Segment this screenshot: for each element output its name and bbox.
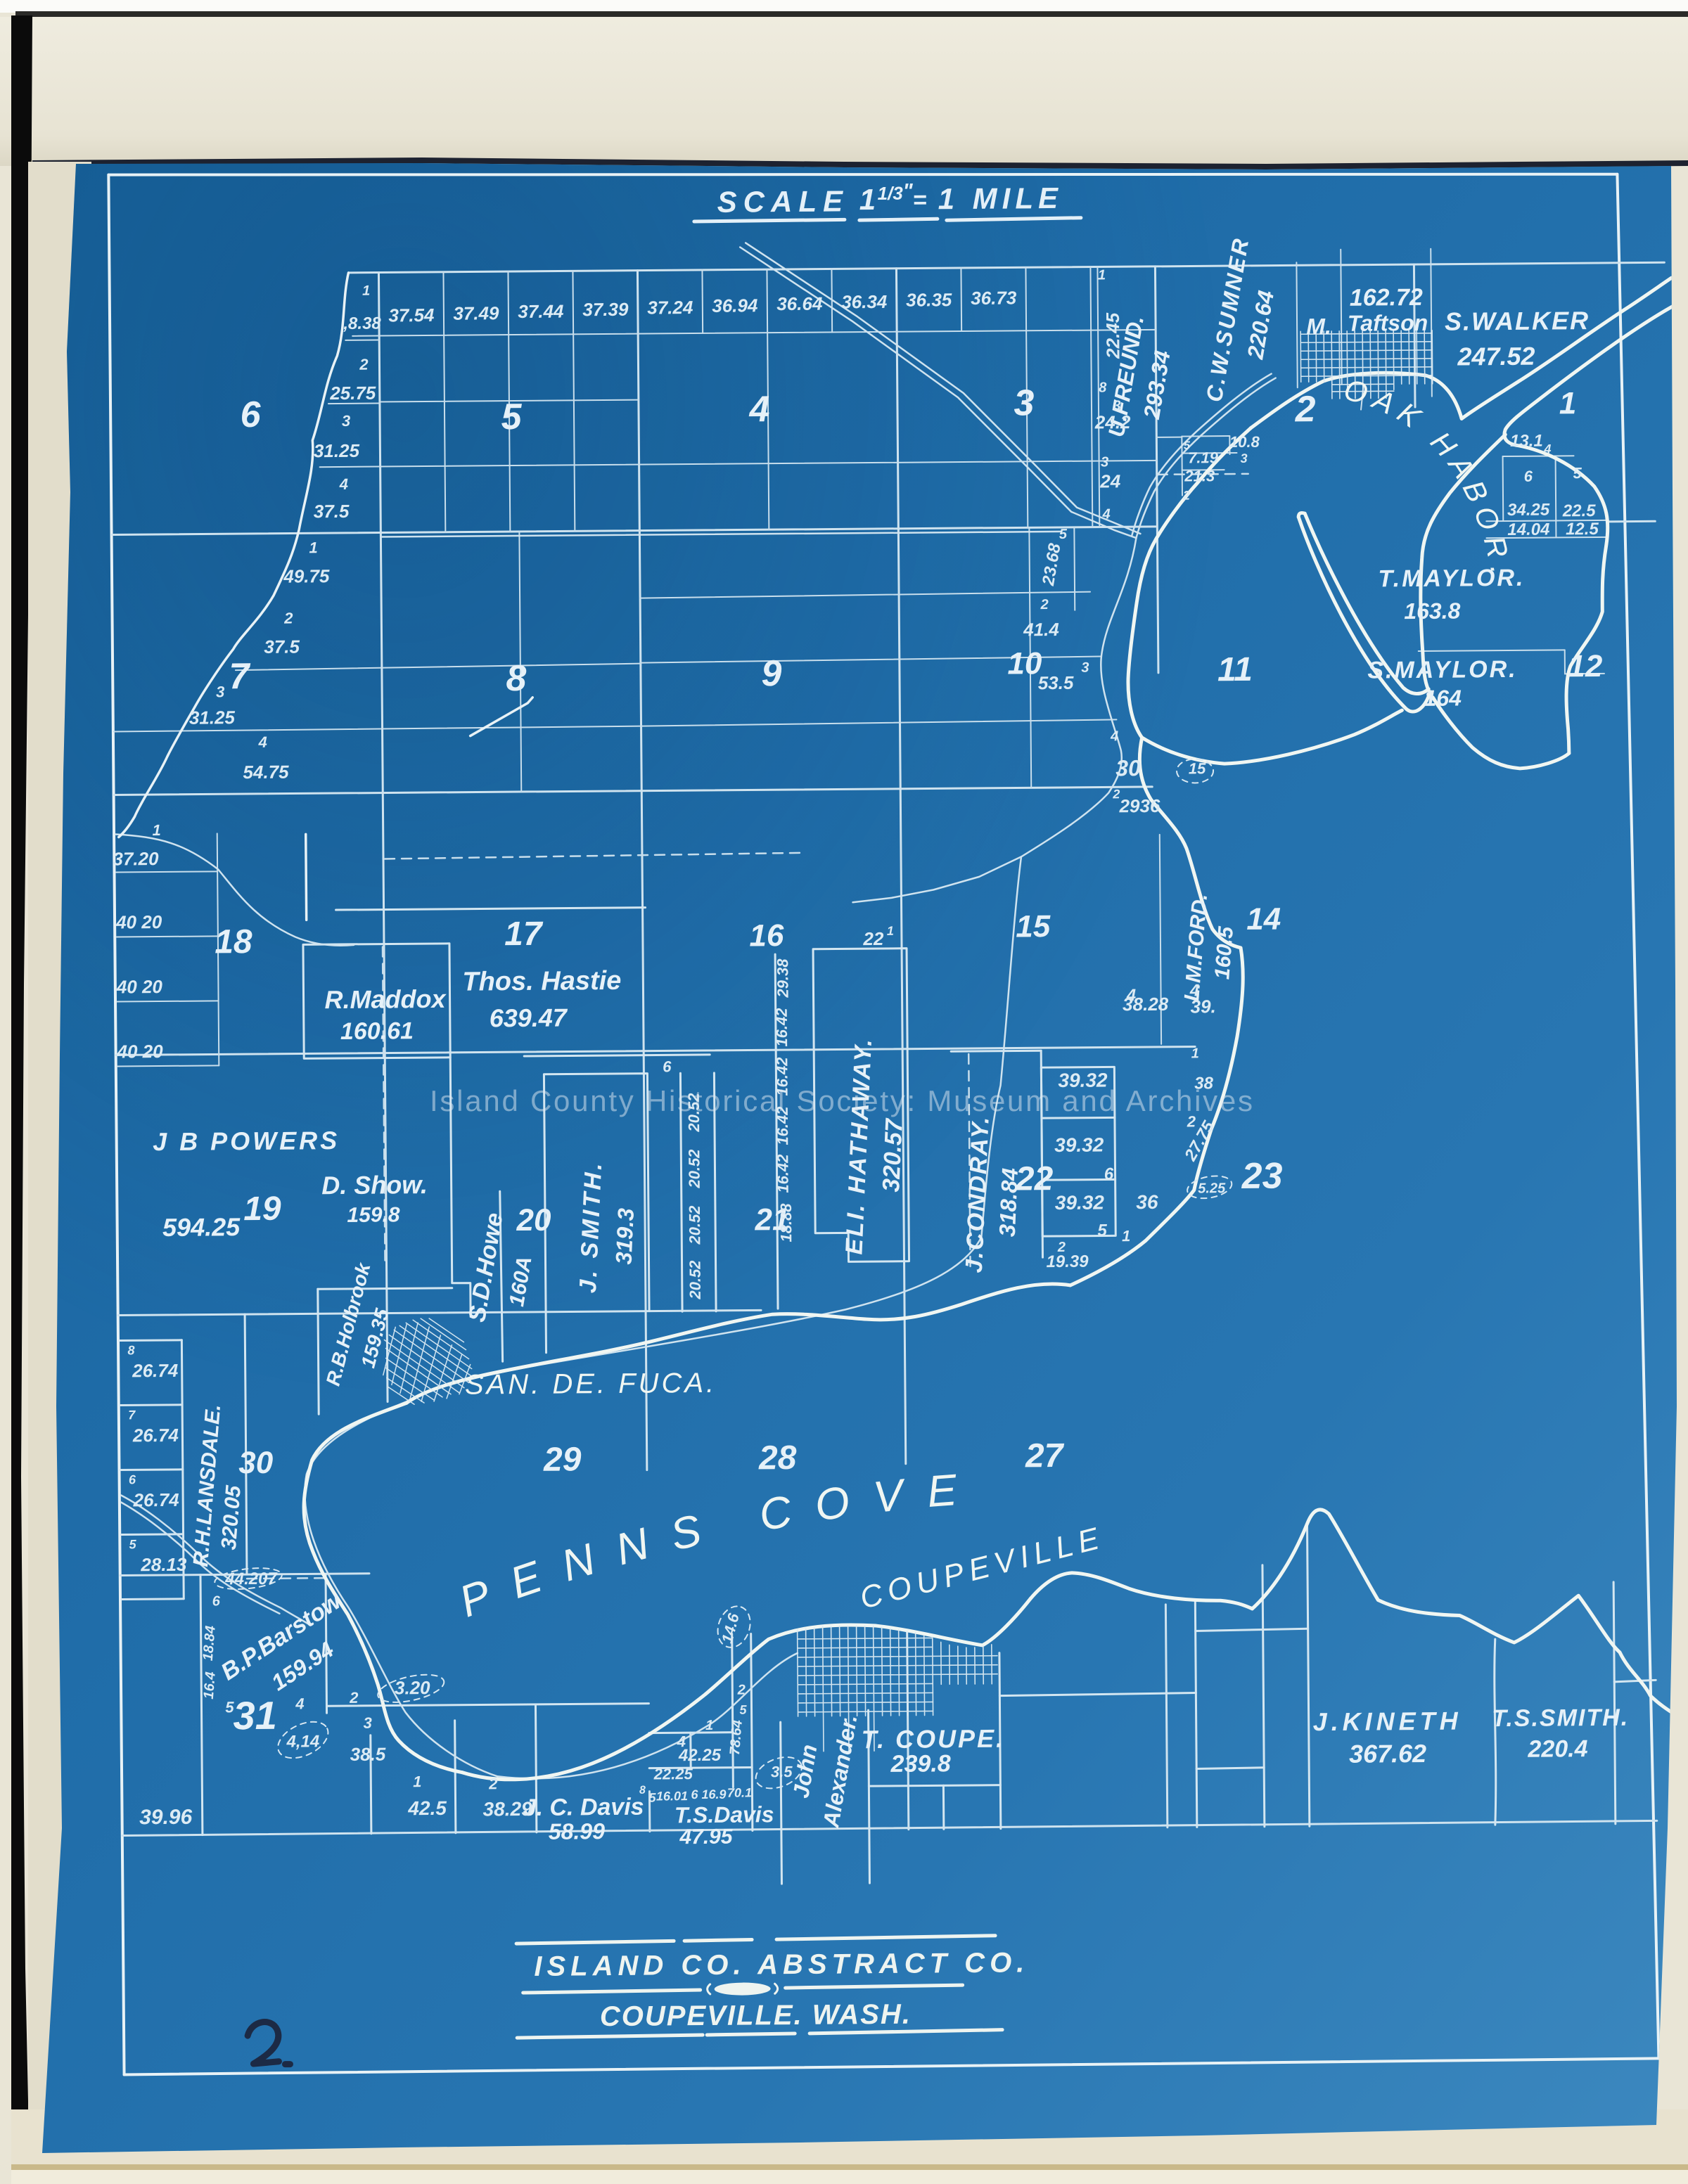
svg-text:70.1: 70.1 — [727, 1785, 752, 1799]
svg-text:2: 2 — [1182, 489, 1190, 503]
svg-text:220.4: 220.4 — [1527, 1735, 1587, 1763]
svg-text:367.62: 367.62 — [1349, 1739, 1426, 1768]
svg-text:8: 8 — [506, 658, 526, 699]
svg-text:4: 4 — [257, 733, 267, 751]
svg-text:36.34: 36.34 — [841, 291, 888, 313]
svg-text:COUPEVILLE. WASH.: COUPEVILLE. WASH. — [600, 1999, 912, 2032]
svg-text:T. COUPE.: T. COUPE. — [862, 1724, 1006, 1754]
svg-text:4,14: 4,14 — [286, 1732, 319, 1751]
svg-text:8: 8 — [639, 1785, 646, 1797]
svg-text:37.44: 37.44 — [518, 300, 564, 322]
svg-text:318.84: 318.84 — [995, 1167, 1023, 1238]
svg-text:5: 5 — [1573, 464, 1582, 482]
svg-text:5: 5 — [129, 1537, 137, 1551]
svg-text:39.32: 39.32 — [1055, 1191, 1105, 1214]
svg-text:": " — [902, 180, 913, 203]
svg-text:37.39: 37.39 — [582, 299, 629, 321]
svg-text:3: 3 — [1240, 451, 1247, 465]
svg-text:8: 8 — [127, 1343, 134, 1357]
svg-text:594.25: 594.25 — [162, 1212, 241, 1242]
svg-text:19.39: 19.39 — [1046, 1252, 1089, 1271]
svg-text:31.25: 31.25 — [314, 440, 360, 462]
svg-text:D. Show.: D. Show. — [321, 1170, 428, 1200]
svg-text:3: 3 — [1113, 398, 1120, 413]
svg-text:23: 23 — [1241, 1155, 1282, 1196]
svg-text:160.61: 160.61 — [340, 1017, 414, 1045]
svg-text:239.8: 239.8 — [890, 1750, 950, 1778]
svg-text:25.75: 25.75 — [329, 383, 376, 404]
svg-text:12: 12 — [1568, 649, 1603, 683]
svg-text:14.04: 14.04 — [1507, 520, 1549, 539]
svg-text:37.24: 37.24 — [647, 297, 693, 319]
svg-text:J B POWERS: J B POWERS — [153, 1126, 340, 1156]
svg-text:1: 1 — [887, 924, 894, 938]
svg-text:18.84: 18.84 — [200, 1625, 219, 1662]
svg-text:5: 5 — [1097, 1221, 1107, 1240]
svg-text:162.72: 162.72 — [1350, 284, 1423, 311]
svg-text:40 20: 40 20 — [116, 1041, 163, 1062]
svg-text:47.95: 47.95 — [679, 1825, 734, 1849]
svg-text:3.20: 3.20 — [395, 1677, 430, 1698]
svg-text:10: 10 — [1007, 646, 1042, 681]
svg-text:6: 6 — [129, 1472, 136, 1486]
svg-text:39.32: 39.32 — [1054, 1133, 1104, 1156]
svg-text:4: 4 — [1110, 728, 1118, 744]
svg-text:M.: M. — [1306, 314, 1331, 339]
svg-text:30: 30 — [238, 1446, 274, 1480]
svg-text:Taftson: Taftson — [1348, 310, 1428, 336]
svg-text:247.52: 247.52 — [1457, 342, 1535, 371]
svg-text:37.54: 37.54 — [388, 304, 435, 326]
svg-text:5: 5 — [1059, 527, 1068, 542]
svg-text:39.: 39. — [1190, 996, 1215, 1017]
svg-text:34.25: 34.25 — [1507, 500, 1550, 519]
svg-text:19: 19 — [243, 1190, 281, 1228]
svg-text:10.8: 10.8 — [1229, 433, 1260, 451]
svg-text:15: 15 — [1016, 909, 1051, 944]
svg-text:42.5: 42.5 — [407, 1797, 447, 1819]
svg-text:16.42: 16.42 — [774, 1154, 791, 1193]
svg-text:36.64: 36.64 — [776, 293, 823, 315]
svg-text:1: 1 — [1098, 267, 1106, 283]
svg-text:3: 3 — [363, 1714, 371, 1732]
svg-text:3: 3 — [1014, 383, 1034, 423]
svg-text:26.74: 26.74 — [132, 1360, 179, 1382]
svg-text:22.45: 22.45 — [1102, 312, 1124, 359]
svg-text:6 16.9: 6 16.9 — [691, 1787, 726, 1801]
svg-text:42.25: 42.25 — [678, 1746, 722, 1765]
svg-text:38.5: 38.5 — [350, 1744, 386, 1765]
svg-text:28: 28 — [758, 1439, 797, 1477]
svg-text:,8.38: ,8.38 — [343, 314, 381, 333]
svg-text:13.1: 13.1 — [1510, 432, 1543, 451]
svg-text:Island County Historical Socie: Island County Historical Society: Museum… — [430, 1084, 1253, 1117]
svg-text:2: 2 — [1294, 389, 1315, 430]
svg-text:16.01: 16.01 — [656, 1789, 688, 1803]
svg-text:31: 31 — [233, 1693, 277, 1737]
svg-text:SCALE: SCALE — [717, 184, 849, 218]
svg-text:T.S.Davis: T.S.Davis — [674, 1801, 774, 1828]
svg-text:5: 5 — [739, 1702, 747, 1716]
svg-text:28.13: 28.13 — [140, 1554, 187, 1576]
svg-text:16: 16 — [749, 918, 784, 953]
svg-text:37.49: 37.49 — [453, 302, 499, 324]
svg-text:17: 17 — [504, 916, 544, 953]
svg-text:4: 4 — [748, 389, 769, 430]
svg-text:1: 1 — [859, 183, 876, 216]
svg-text:22.25: 22.25 — [653, 1765, 693, 1782]
svg-text:320.57: 320.57 — [878, 1117, 908, 1193]
svg-text:164: 164 — [1424, 685, 1462, 710]
svg-text:20: 20 — [516, 1203, 551, 1238]
svg-text:T.S.SMITH.: T.S.SMITH. — [1492, 1704, 1629, 1733]
svg-text:36.94: 36.94 — [712, 295, 758, 316]
svg-text:26.74: 26.74 — [132, 1489, 179, 1511]
svg-text:9: 9 — [761, 653, 781, 694]
svg-text:20.52: 20.52 — [685, 1149, 703, 1189]
svg-text:J.KINETH: J.KINETH — [1313, 1707, 1462, 1737]
svg-text:2: 2 — [359, 356, 369, 373]
svg-text:1: 1 — [152, 821, 160, 839]
svg-text:36.35: 36.35 — [906, 289, 952, 311]
svg-text:160.5: 160.5 — [1210, 925, 1238, 980]
svg-text:38.29: 38.29 — [482, 1798, 532, 1820]
svg-text:20.52: 20.52 — [686, 1205, 703, 1245]
svg-text:S.WALKER: S.WALKER — [1445, 306, 1590, 336]
svg-text:7: 7 — [128, 1408, 136, 1422]
svg-text:1: 1 — [1122, 1227, 1130, 1245]
svg-text:26.74: 26.74 — [132, 1425, 179, 1446]
svg-text:639.47: 639.47 — [490, 1003, 568, 1032]
svg-text:5: 5 — [648, 1791, 656, 1805]
svg-text:J. C. Davis: J. C. Davis — [523, 1794, 644, 1821]
svg-text:22: 22 — [862, 928, 884, 949]
svg-text:5.25: 5.25 — [1198, 1181, 1226, 1196]
svg-text:58.99: 58.99 — [549, 1818, 606, 1844]
svg-text:31.25: 31.25 — [189, 707, 236, 728]
svg-text:24.2: 24.2 — [1094, 411, 1131, 432]
svg-text:78.64: 78.64 — [727, 1719, 746, 1756]
svg-text:38.28: 38.28 — [1123, 994, 1169, 1015]
svg-text:SAN. DE. FUCA.: SAN. DE. FUCA. — [465, 1368, 717, 1401]
svg-text:22.5: 22.5 — [1562, 501, 1597, 520]
svg-text:1/3: 1/3 — [877, 183, 903, 204]
svg-text:15: 15 — [1189, 759, 1206, 777]
svg-text:16.42: 16.42 — [773, 1008, 791, 1047]
svg-text:3: 3 — [342, 412, 350, 430]
svg-text:7.19: 7.19 — [1188, 449, 1219, 466]
svg-text:29: 29 — [543, 1441, 582, 1478]
svg-text:Thos. Hastie: Thos. Hastie — [462, 966, 621, 997]
svg-text:1: 1 — [309, 539, 317, 556]
svg-text:18.88: 18.88 — [777, 1203, 795, 1242]
svg-text:1 MILE: 1 MILE — [938, 181, 1063, 215]
svg-text:11: 11 — [1217, 651, 1253, 688]
svg-text:37.5: 37.5 — [264, 636, 300, 657]
svg-text:1: 1 — [1559, 386, 1577, 420]
svg-text:36: 36 — [1136, 1191, 1158, 1213]
svg-text:1: 1 — [705, 1718, 713, 1733]
svg-text:27: 27 — [1025, 1437, 1065, 1475]
svg-text:54.75: 54.75 — [243, 762, 289, 783]
svg-text:41.4: 41.4 — [1023, 619, 1059, 640]
svg-text:2: 2 — [737, 1683, 746, 1698]
svg-text:37.5: 37.5 — [314, 501, 350, 522]
svg-text:1: 1 — [362, 283, 370, 299]
svg-text:163.8: 163.8 — [1404, 598, 1461, 624]
svg-text:29.38: 29.38 — [774, 958, 791, 998]
svg-text:14: 14 — [1246, 902, 1281, 937]
svg-text:53.5: 53.5 — [1038, 672, 1074, 693]
svg-text:12.5: 12.5 — [1566, 520, 1599, 539]
svg-text:39.96: 39.96 — [139, 1806, 193, 1830]
svg-text:ISLAND CO. ABSTRACT CO.: ISLAND CO. ABSTRACT CO. — [534, 1947, 1029, 1982]
svg-text:3: 3 — [216, 683, 224, 700]
svg-text:49.75: 49.75 — [283, 565, 330, 587]
svg-text:21.3: 21.3 — [1184, 467, 1215, 484]
svg-text:6: 6 — [663, 1058, 672, 1075]
svg-text:159.8: 159.8 — [347, 1203, 400, 1227]
svg-text:4: 4 — [295, 1695, 304, 1712]
svg-text:1: 1 — [1191, 1046, 1199, 1061]
svg-text:2: 2 — [488, 1775, 498, 1792]
svg-text:37.20: 37.20 — [113, 848, 159, 870]
svg-text:6: 6 — [1104, 1164, 1114, 1183]
svg-text:319.3: 319.3 — [610, 1207, 639, 1265]
svg-text:2: 2 — [349, 1689, 359, 1707]
svg-text:4: 4 — [1543, 442, 1551, 456]
svg-text:5: 5 — [225, 1698, 234, 1716]
svg-text:30: 30 — [1115, 755, 1141, 781]
svg-text:4: 4 — [339, 475, 348, 493]
svg-text:20.52: 20.52 — [686, 1260, 703, 1300]
svg-text:5: 5 — [501, 397, 522, 437]
svg-text:36.73: 36.73 — [971, 287, 1017, 309]
svg-text:1: 1 — [413, 1773, 421, 1790]
svg-text:3: 3 — [1081, 660, 1089, 676]
svg-text:2: 2 — [283, 610, 293, 627]
svg-text:40 20: 40 20 — [115, 911, 162, 933]
svg-text:40 20: 40 20 — [116, 976, 163, 998]
svg-text:7: 7 — [229, 656, 250, 697]
svg-text:6: 6 — [212, 1593, 221, 1609]
svg-text:44.207: 44.207 — [224, 1569, 278, 1589]
svg-text:=: = — [913, 186, 927, 213]
svg-text:4: 4 — [1102, 506, 1111, 522]
svg-text:24: 24 — [1099, 470, 1121, 492]
svg-text:2: 2 — [1040, 597, 1049, 612]
svg-text:R.Maddox: R.Maddox — [324, 984, 447, 1014]
svg-text:2936: 2936 — [1118, 795, 1160, 816]
svg-text:8: 8 — [1099, 380, 1107, 395]
svg-text:3: 3 — [1101, 454, 1108, 470]
svg-text:T.MAYLOR.: T.MAYLOR. — [1378, 565, 1525, 593]
svg-text:6: 6 — [240, 394, 261, 435]
svg-text:18: 18 — [215, 923, 252, 961]
svg-text:S.MAYLOR.: S.MAYLOR. — [1367, 656, 1518, 684]
svg-text:16.4: 16.4 — [201, 1671, 219, 1700]
svg-text:3.5: 3.5 — [771, 1763, 793, 1780]
svg-text:6: 6 — [1524, 468, 1533, 485]
